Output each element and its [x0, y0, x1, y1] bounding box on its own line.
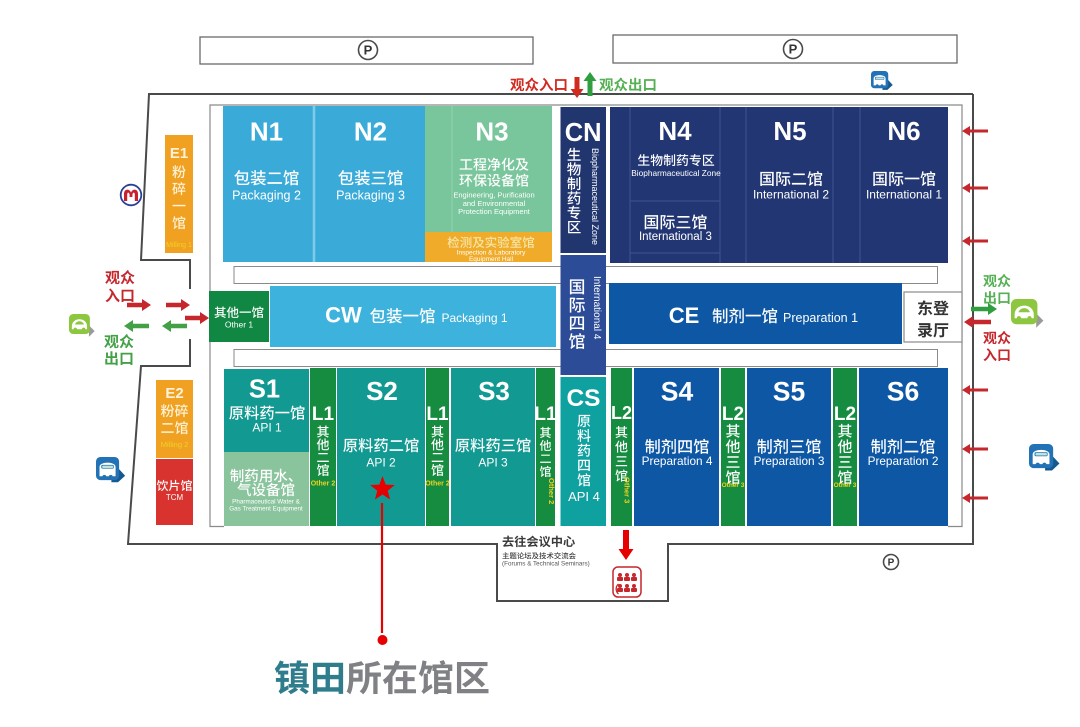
- svg-text:Other 2: Other 2: [311, 481, 336, 488]
- svg-text:API 4: API 4: [568, 489, 600, 504]
- svg-text:N6: N6: [887, 116, 920, 146]
- svg-text:Other 2: Other 2: [425, 481, 450, 488]
- svg-text:Preparation 2: Preparation 2: [868, 454, 939, 468]
- svg-text:API 3: API 3: [478, 456, 508, 470]
- svg-text:International 2: International 2: [753, 187, 829, 201]
- svg-text:Other 3: Other 3: [834, 482, 857, 489]
- svg-text:S4: S4: [661, 377, 694, 407]
- svg-text:TCM: TCM: [166, 493, 184, 502]
- svg-text:(Forums & Technical Seminars): (Forums & Technical Seminars): [502, 561, 590, 568]
- svg-text:Pharmaceutical Water &: Pharmaceutical Water &: [232, 499, 300, 506]
- svg-text:Other 3: Other 3: [623, 477, 632, 503]
- svg-text:Preparation 4: Preparation 4: [642, 454, 713, 468]
- svg-text:E1: E1: [170, 145, 188, 162]
- svg-text:International 1: International 1: [866, 187, 942, 201]
- svg-text:CS: CS: [566, 385, 600, 412]
- svg-text:S3: S3: [478, 376, 510, 406]
- svg-text:Equipment Hall: Equipment Hall: [469, 256, 514, 263]
- svg-text:N4: N4: [658, 116, 692, 146]
- svg-text:L1: L1: [426, 404, 449, 425]
- svg-text:Milling 1: Milling 1: [166, 242, 192, 249]
- svg-text:Other 1: Other 1: [225, 320, 254, 330]
- svg-text:Protection Equipment: Protection Equipment: [458, 207, 531, 216]
- svg-text:P: P: [789, 42, 798, 57]
- svg-text:Biopharmaceutical Zone: Biopharmaceutical Zone: [631, 168, 721, 178]
- svg-text:S2: S2: [366, 376, 398, 406]
- svg-text:CE: CE: [669, 303, 700, 328]
- svg-text:L2: L2: [834, 404, 856, 425]
- svg-text:Other 3: Other 3: [722, 482, 745, 489]
- svg-text:Preparation 1: Preparation 1: [783, 311, 858, 325]
- svg-text:N3: N3: [475, 117, 508, 147]
- svg-text:L2: L2: [722, 404, 744, 425]
- svg-text:Preparation 3: Preparation 3: [754, 454, 825, 468]
- svg-text:N5: N5: [773, 116, 806, 146]
- svg-text:International 4: International 4: [591, 276, 602, 340]
- svg-text:International 3: International 3: [639, 231, 712, 243]
- svg-text:Packaging 3: Packaging 3: [336, 189, 405, 203]
- svg-text:API 2: API 2: [366, 456, 396, 470]
- svg-text:CW: CW: [325, 303, 362, 328]
- svg-text:S6: S6: [887, 377, 919, 407]
- svg-text:N2: N2: [354, 117, 387, 147]
- svg-text:Other 2: Other 2: [547, 478, 556, 504]
- svg-text:Biopharmaceutical Zone: Biopharmaceutical Zone: [590, 148, 600, 245]
- svg-text:S1: S1: [249, 376, 280, 404]
- svg-text:P: P: [888, 558, 895, 569]
- svg-text:S5: S5: [773, 377, 805, 407]
- svg-text:CN: CN: [565, 119, 602, 147]
- svg-text:N1: N1: [250, 117, 283, 147]
- svg-text:L2: L2: [611, 403, 632, 423]
- svg-text:Packaging 1: Packaging 1: [442, 311, 508, 325]
- svg-text:L1: L1: [312, 404, 335, 425]
- svg-text:Packaging 2: Packaging 2: [232, 189, 301, 203]
- svg-text:P: P: [364, 43, 373, 58]
- svg-text:API 1: API 1: [252, 421, 282, 435]
- svg-text:Milling 2: Milling 2: [161, 440, 189, 449]
- svg-text:E2: E2: [165, 385, 183, 402]
- svg-text:Gas Treatment Equipment: Gas Treatment Equipment: [229, 506, 303, 513]
- svg-text:L1: L1: [534, 404, 557, 425]
